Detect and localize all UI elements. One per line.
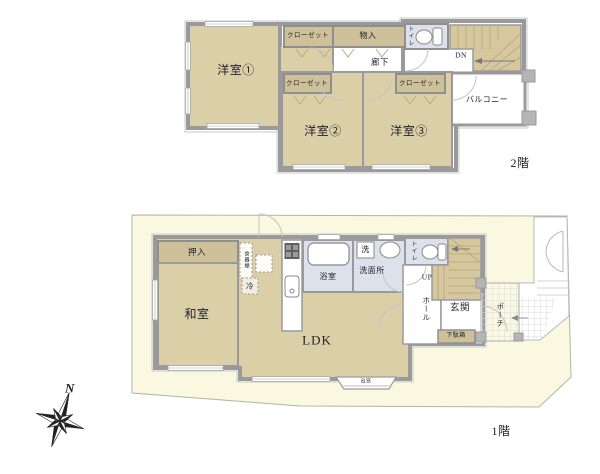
bathroom-label: 浴室	[320, 273, 337, 281]
japanese-room-label: 和室	[184, 308, 209, 320]
porch-label: ポーチ	[496, 302, 504, 328]
refrigerator-label: 冷	[246, 282, 254, 290]
room-west3-label: 洋室③	[390, 125, 428, 137]
floor-plan-drawing	[0, 0, 600, 474]
closet3-label: クローゼット	[399, 81, 441, 88]
cupboard-label: 食器棚	[244, 251, 249, 269]
oshiire-label: 押入	[188, 248, 206, 257]
ldk-label: LDK	[302, 334, 332, 347]
closet1-label: クローゼット	[287, 33, 329, 40]
compass-rose	[28, 385, 93, 455]
toilet-2f-label: トイレ	[407, 26, 413, 47]
hall-label: ホール	[422, 296, 430, 322]
hallway-label: 廊下	[371, 58, 389, 67]
bay-window-label: 出窓	[360, 380, 371, 385]
kitchen-counter	[282, 240, 302, 331]
closet2-label: クローゼット	[286, 81, 328, 88]
storage-label: 物入	[360, 32, 377, 40]
kitchen-sink-icon	[285, 276, 299, 297]
washroom-label: 洗面所	[359, 267, 385, 275]
floor1-label: 1階	[491, 425, 510, 437]
toilet-icon-1f	[422, 244, 446, 260]
bathtub-icon	[308, 243, 349, 265]
floor2-label: 2階	[510, 157, 529, 169]
floor-plan-page: 洋室① クローゼット 物入 トイレ 廊下 DN 洋室② 洋室③ クローゼット ク…	[0, 0, 600, 474]
toilet-1f-label: トイレ	[410, 241, 416, 262]
room-west1-label: 洋室①	[217, 64, 255, 76]
sink-icon	[380, 242, 400, 258]
room-west2-label: 洋室②	[304, 125, 342, 137]
washer-label: 洗	[361, 246, 370, 254]
balcony-label: バルコニー	[466, 96, 508, 104]
stairs-down-label: DN	[455, 51, 467, 59]
appliance-box	[256, 255, 272, 272]
north-label: N	[65, 382, 75, 395]
stairs-up-label: UP	[422, 273, 433, 281]
entrance-label: 玄関	[450, 304, 470, 314]
shoe-cabinet-label: 下駄箱	[446, 333, 466, 339]
